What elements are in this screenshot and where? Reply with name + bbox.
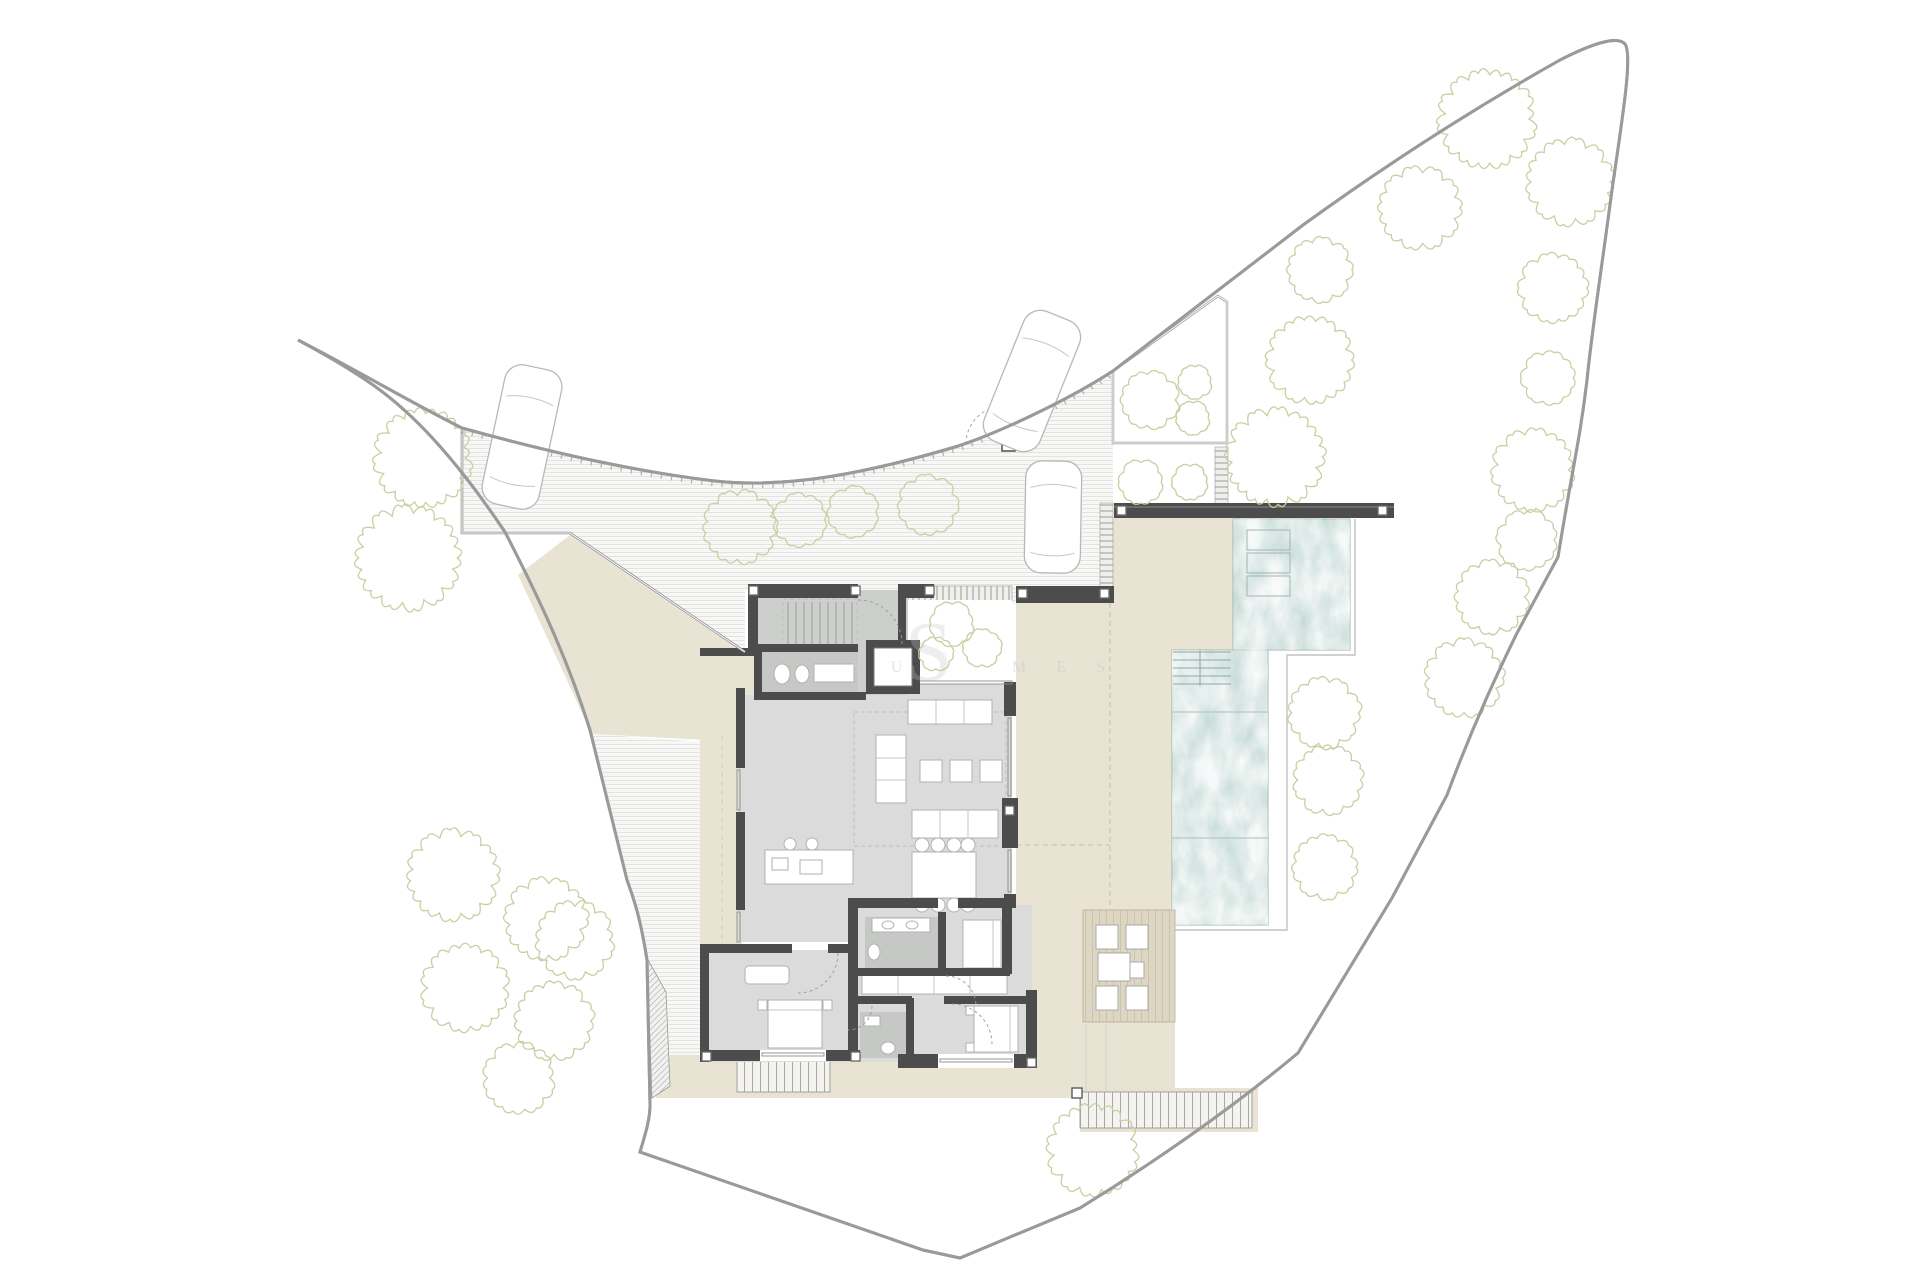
tree	[355, 504, 462, 612]
wardrobe	[862, 974, 1007, 994]
tree	[504, 877, 590, 961]
tree	[1265, 316, 1354, 404]
site-plan-canvas: S S U M E S	[0, 0, 1920, 1280]
tree	[1526, 137, 1616, 227]
north-court-wall	[1016, 586, 1114, 603]
tree	[1454, 559, 1529, 635]
tree	[421, 943, 509, 1032]
car	[1024, 461, 1082, 574]
tree	[1496, 510, 1557, 571]
bed2	[966, 1006, 1018, 1052]
tree	[1521, 351, 1575, 405]
tree	[373, 408, 473, 508]
tree	[1118, 460, 1162, 504]
tree	[1517, 252, 1588, 323]
watermark-text-right: M E S	[1012, 659, 1118, 676]
tree	[514, 981, 595, 1060]
tree	[407, 828, 501, 922]
tree	[1424, 638, 1505, 718]
tree	[1292, 834, 1358, 901]
site-plan-drawing: S S U M E S	[0, 0, 1920, 1280]
tree	[1287, 237, 1353, 304]
tree	[535, 901, 614, 981]
tree	[1172, 464, 1208, 500]
west-terrace-strip	[700, 732, 742, 952]
tree	[1378, 166, 1463, 250]
watermark-logo: S	[905, 603, 953, 699]
bedA	[963, 920, 1001, 968]
tree	[483, 1041, 555, 1114]
bathroom1-fixtures	[774, 664, 854, 684]
watermark-text-left: S U	[852, 659, 915, 676]
tree	[1491, 428, 1575, 512]
outdoor-stairs-right	[1072, 1088, 1252, 1128]
tree	[1288, 677, 1362, 750]
tree	[1225, 407, 1327, 508]
pool-top-wall	[1114, 503, 1394, 518]
outdoor-stairs-left	[737, 1058, 830, 1092]
tree	[1293, 745, 1364, 816]
